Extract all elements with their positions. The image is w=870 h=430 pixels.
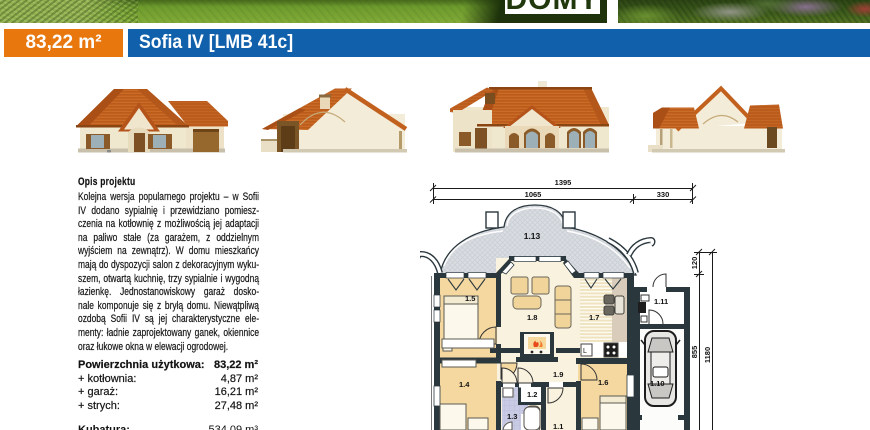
- svg-text:120: 120: [690, 257, 699, 270]
- svg-text:855: 855: [690, 346, 699, 359]
- svg-text:1.1: 1.1: [553, 422, 563, 430]
- svg-text:L: L: [583, 348, 587, 355]
- svg-text:1395: 1395: [555, 178, 572, 187]
- svg-text:1.8: 1.8: [527, 313, 537, 322]
- svg-text:1.11: 1.11: [654, 297, 668, 306]
- svg-text:1.3: 1.3: [507, 412, 517, 421]
- svg-text:1.10: 1.10: [650, 379, 665, 388]
- svg-text:1065: 1065: [525, 190, 542, 199]
- svg-text:1180: 1180: [703, 347, 712, 363]
- svg-text:1.9: 1.9: [553, 370, 563, 379]
- svg-text:330: 330: [657, 190, 670, 199]
- svg-text:1.7: 1.7: [589, 313, 599, 322]
- svg-text:1.13: 1.13: [524, 231, 541, 241]
- svg-text:1.5: 1.5: [465, 294, 475, 303]
- svg-text:1.6: 1.6: [598, 378, 608, 387]
- svg-text:1.4: 1.4: [459, 380, 470, 389]
- svg-text:1.2: 1.2: [527, 390, 537, 399]
